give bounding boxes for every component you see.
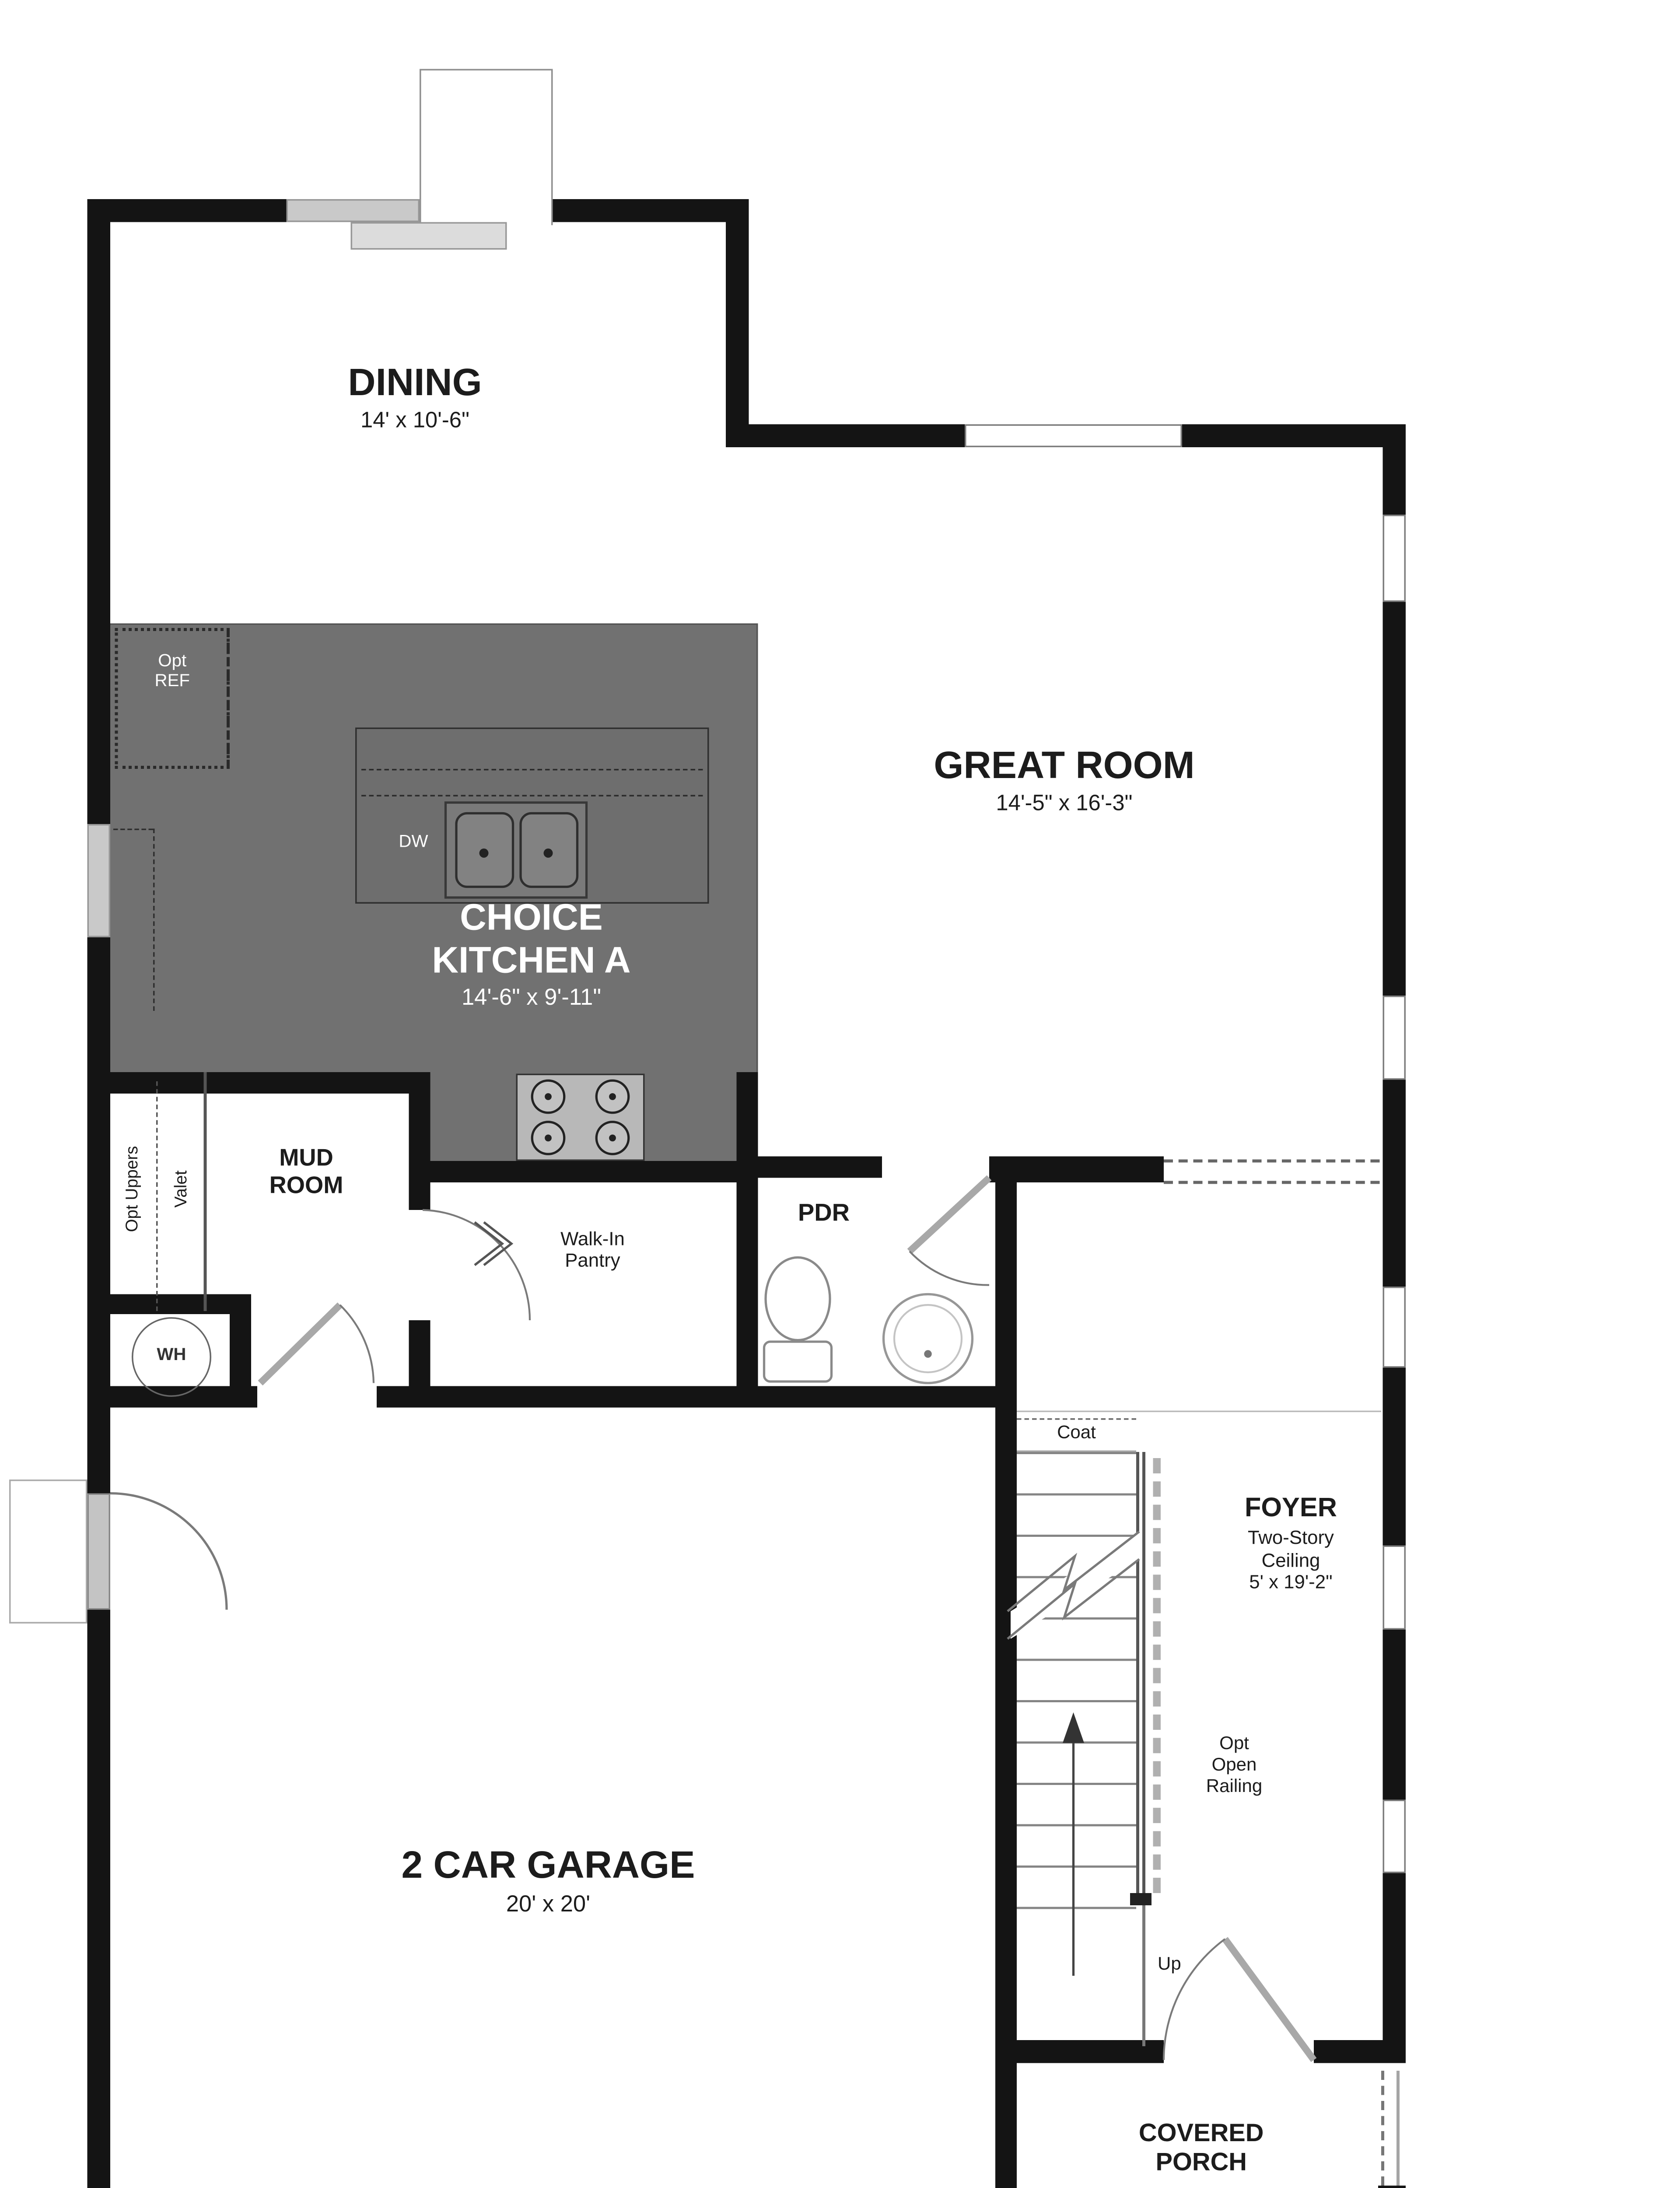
wall-left-3 bbox=[87, 1610, 111, 2188]
coat-closet-dash bbox=[1017, 1418, 1136, 1420]
opt-ref-box bbox=[115, 628, 230, 769]
wall-top-greatroom-right bbox=[1182, 424, 1406, 448]
wall-left-2 bbox=[87, 937, 111, 1494]
valet-label: Valet bbox=[172, 1112, 192, 1266]
greatroom-label: GREAT ROOM 14'-5" x 16'-3" bbox=[896, 744, 1233, 817]
mudroom-bench-edge bbox=[204, 1072, 206, 1311]
wall-mud-pantry-upper bbox=[409, 1072, 430, 1210]
window-greatroom-right-3 bbox=[1383, 1287, 1406, 1368]
opt-counter-dash-h bbox=[113, 829, 153, 831]
sink-bowl bbox=[894, 1305, 962, 1372]
mudroom-bench-dash bbox=[156, 1081, 158, 1311]
pantry-line2: Pantry bbox=[516, 1250, 669, 1272]
stair-railing-cap bbox=[1130, 1893, 1151, 1905]
kitchen-name-line1: CHOICE bbox=[363, 898, 700, 940]
greatroom-dims: 14'-5" x 16'-3" bbox=[896, 792, 1233, 817]
foyer-dims: 5' x 19'-2" bbox=[1199, 1571, 1383, 1593]
stair-railing-line-2 bbox=[1142, 1452, 1145, 1899]
kitchen-dims: 14'-6" x 9'-11" bbox=[363, 985, 700, 1011]
garage-name: 2 CAR GARAGE bbox=[349, 1844, 747, 1888]
window-greatroom-right-2 bbox=[1383, 996, 1406, 1080]
sink-drain bbox=[924, 1350, 932, 1358]
coat-label: Coat bbox=[1023, 1423, 1130, 1444]
island-overhang-dash-1 bbox=[361, 769, 703, 771]
mud-garage-door-leaf bbox=[260, 1305, 340, 1383]
window-greatroom-right-1 bbox=[1383, 515, 1406, 602]
toilet-tank bbox=[764, 1342, 832, 1382]
stove-box bbox=[516, 1074, 645, 1161]
water-heater-label: WH bbox=[157, 1347, 186, 1367]
foyer-label: FOYER Two-Story Ceiling 5' x 19'-2" bbox=[1199, 1492, 1383, 1593]
chimney bbox=[420, 69, 553, 225]
opt-ref-divider-dash bbox=[227, 628, 230, 769]
wall-range-back bbox=[409, 1161, 758, 1182]
wall-mud-pantry-lower bbox=[409, 1320, 430, 1386]
side-door-arc bbox=[110, 1494, 227, 1610]
porch-edge-dash-right bbox=[1381, 2071, 1384, 2186]
stair-treads bbox=[1017, 1452, 1136, 1939]
opt-uppers-label: Opt Uppers bbox=[123, 1112, 143, 1266]
wall-garage-foyer-divider bbox=[995, 1157, 1017, 2188]
pantry-line1: Walk-In bbox=[516, 1228, 669, 1250]
kitchen-label: CHOICE KITCHEN A 14'-6" x 9'-11" bbox=[363, 898, 700, 1012]
wall-top-dining-left bbox=[87, 199, 287, 222]
stair-railing-line-1 bbox=[1136, 1452, 1139, 1899]
porch-label: COVERED PORCH bbox=[1090, 2120, 1312, 2178]
mudroom-line1: MUD bbox=[230, 1146, 383, 1173]
window-greatroom-top bbox=[965, 424, 1182, 448]
greatroom-name: GREAT ROOM bbox=[896, 744, 1233, 789]
opt-ref-line1: Opt bbox=[115, 652, 230, 673]
pdr-door-arc bbox=[910, 1252, 989, 1285]
railing-line2: Open bbox=[1188, 1755, 1280, 1776]
porch-line1: COVERED bbox=[1090, 2120, 1312, 2149]
dining-dims: 14' x 10'-6" bbox=[293, 409, 538, 434]
foyer-name: FOYER bbox=[1199, 1492, 1383, 1522]
pdr-door-leaf bbox=[910, 1178, 989, 1252]
wall-step-vertical bbox=[726, 199, 749, 447]
fireplace-hearth bbox=[351, 222, 507, 250]
pantry-door-arc bbox=[423, 1210, 530, 1320]
opt-railing-label: Opt Open Railing bbox=[1188, 1734, 1280, 1797]
porch-post-right bbox=[1378, 2186, 1406, 2188]
wall-top-dining-right bbox=[551, 199, 746, 222]
side-door-slab bbox=[87, 1494, 111, 1610]
sink-icon bbox=[884, 1294, 973, 1383]
window-dining-left bbox=[87, 824, 111, 937]
wall-wh-right bbox=[230, 1294, 251, 1386]
kitchen-name-line2: KITCHEN A bbox=[363, 940, 700, 982]
island-overhang-dash-2 bbox=[361, 795, 703, 797]
wall-right-4 bbox=[1383, 1368, 1406, 1546]
opt-counter-dash-v bbox=[153, 829, 155, 1011]
wall-right-1 bbox=[1383, 424, 1406, 515]
railing-line3: Railing bbox=[1188, 1776, 1280, 1797]
wall-pantry-right bbox=[737, 1072, 758, 1386]
railing-line1: Opt bbox=[1188, 1734, 1280, 1755]
wall-left-1 bbox=[87, 199, 111, 824]
wall-foyer-bottom-left bbox=[995, 2040, 1164, 2063]
cased-opening-dash-bottom bbox=[1164, 1181, 1380, 1184]
wall-pdr-top-left bbox=[758, 1157, 882, 1178]
window-dining-top bbox=[287, 199, 420, 222]
wall-garage-top-right bbox=[377, 1386, 1017, 1408]
cased-opening-dash-top bbox=[1164, 1160, 1380, 1163]
kitchen-island bbox=[355, 728, 709, 904]
mudroom-label: MUD ROOM bbox=[230, 1146, 383, 1200]
wall-foyer-bottom-right bbox=[1314, 2040, 1406, 2063]
mudroom-line2: ROOM bbox=[230, 1173, 383, 1200]
wall-wh-top bbox=[87, 1294, 252, 1315]
dining-name: DINING bbox=[293, 361, 538, 406]
pantry-door-chevron-icon-2 bbox=[484, 1222, 511, 1265]
mud-garage-door-arc bbox=[340, 1305, 374, 1383]
foyer-sub2: Ceiling bbox=[1199, 1549, 1383, 1571]
porch-line2: PORCH bbox=[1090, 2149, 1312, 2177]
pdr-label: PDR bbox=[778, 1201, 870, 1229]
porch-edge-line-right bbox=[1396, 2071, 1399, 2186]
side-door-stoop bbox=[9, 1480, 87, 1623]
wall-right-3 bbox=[1383, 1080, 1406, 1287]
wall-right-5 bbox=[1383, 1630, 1406, 1800]
pantry-label: Walk-In Pantry bbox=[516, 1228, 669, 1273]
wall-right-2 bbox=[1383, 602, 1406, 996]
opt-ref-line2: REF bbox=[115, 673, 230, 693]
stair-railing-lower bbox=[1142, 1905, 1144, 2046]
water-heater-icon: WH bbox=[132, 1317, 211, 1397]
wall-right-6 bbox=[1383, 1873, 1406, 2063]
window-foyer-right-2 bbox=[1383, 1800, 1406, 1873]
garage-label: 2 CAR GARAGE 20' x 20' bbox=[349, 1844, 747, 1918]
opt-ref-label: Opt REF bbox=[115, 652, 230, 693]
pantry-door-chevron-icon bbox=[475, 1222, 502, 1265]
floor-plan: WH bbox=[0, 0, 1680, 2188]
dw-label: DW bbox=[386, 833, 441, 853]
foyer-floor-line bbox=[1017, 1411, 1381, 1413]
up-label: Up bbox=[1158, 1954, 1204, 1975]
garage-dims: 20' x 20' bbox=[349, 1891, 747, 1918]
plan-symbols-layer bbox=[0, 0, 1680, 2188]
opt-railing-dash bbox=[1153, 1458, 1161, 1893]
wall-mudroom-top bbox=[87, 1072, 430, 1094]
toilet-icon bbox=[766, 1258, 830, 1340]
wall-top-greatroom-left bbox=[726, 424, 965, 448]
front-door-leaf bbox=[1225, 1939, 1314, 2060]
window-foyer-right-1 bbox=[1383, 1546, 1406, 1630]
dining-label: DINING 14' x 10'-6" bbox=[293, 361, 538, 434]
foyer-sub1: Two-Story bbox=[1199, 1527, 1383, 1549]
